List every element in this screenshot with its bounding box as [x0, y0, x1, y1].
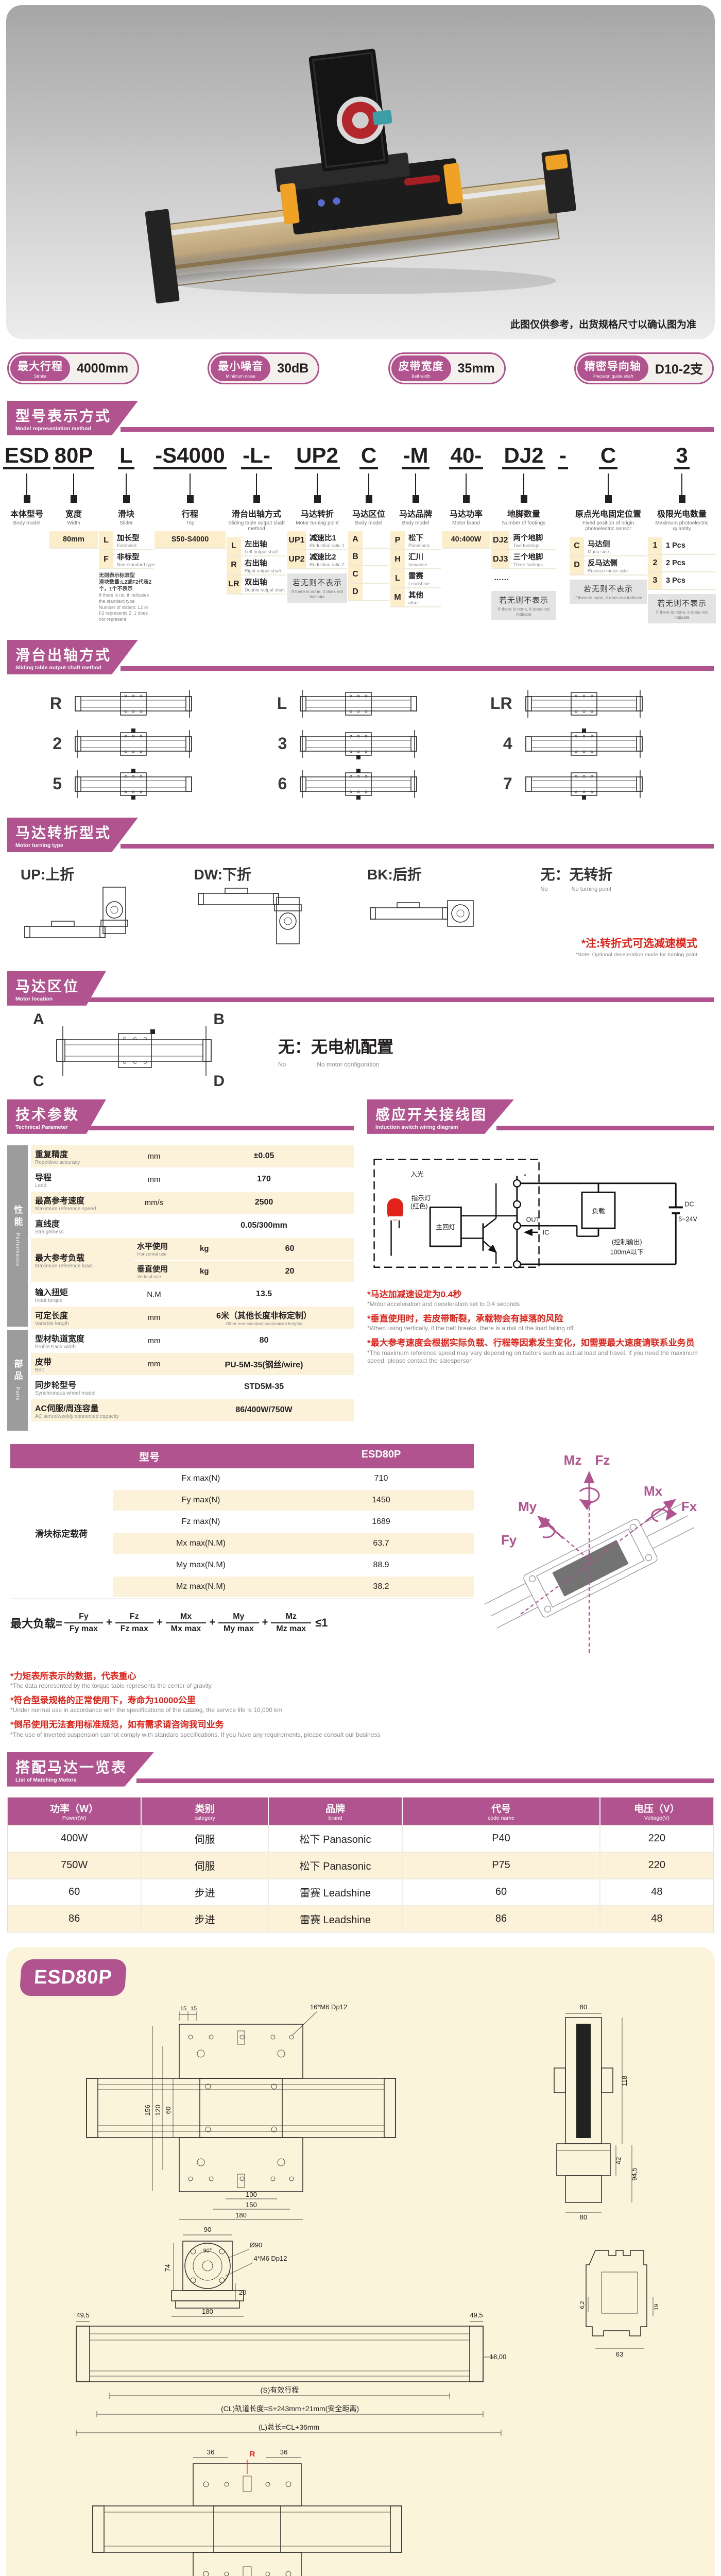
code-options: 40:400W: [442, 531, 490, 549]
param-value: PU-5M-35(钢丝/wire): [174, 1353, 354, 1375]
load-table-head: 型号 ESD80P: [10, 1444, 474, 1468]
subparam-en: Vertical use: [137, 1274, 197, 1279]
dim: 156: [144, 2105, 151, 2116]
option-en: Two footings: [513, 543, 554, 548]
param-name-en: Variable length: [35, 1321, 130, 1327]
cell-brand: 松下 Panasonic: [269, 1826, 403, 1852]
subparam-unit: kg: [200, 1238, 226, 1260]
param-value: 2500: [174, 1192, 354, 1214]
connector-line: [256, 473, 257, 495]
model-code-segment: -S4000: [153, 445, 226, 469]
dim: 180: [202, 2308, 213, 2315]
param-name-cn: 直线度: [35, 1217, 130, 1229]
tech-and-wiring: 技术参数Technical Parameter 性能 Performance 部…: [0, 1086, 721, 1431]
spec-badge-cn: 皮带宽度: [399, 358, 444, 374]
dim: 18,00: [489, 2353, 506, 2361]
turning-icon-dw: [194, 884, 354, 950]
code-field-label-en: Slider: [119, 520, 133, 527]
model-code-column: -S4000 行程 Trip S50-S4000: [154, 445, 226, 552]
option-cn: ……: [494, 574, 554, 582]
note-cn: *符合型录规格的正常使用下，寿命为10000公里: [10, 1695, 711, 1706]
load-rows: Fx max(N) 710 Fy max(N) 1450 Fz max(N) 1…: [113, 1468, 474, 1598]
shaft-variant: 7: [485, 768, 687, 800]
option-cn: 减速比2: [310, 551, 345, 562]
note-en: *The use of inverted suspension cannot c…: [10, 1731, 711, 1739]
no-motor-no: No: [278, 1061, 286, 1068]
section-subtitle: Induction switch wiring diagram: [375, 1124, 487, 1130]
load-row: Mx max(N.M) 63.7: [113, 1533, 474, 1555]
section-title: 型号表示方式: [15, 405, 111, 426]
code-field-label-en: Trip: [186, 520, 195, 527]
dim: 80: [579, 2003, 587, 2011]
col-power: 功率（W）: [8, 1801, 141, 1815]
dim: 42: [614, 2157, 622, 2164]
dim: 49,5: [470, 2311, 483, 2319]
section-subtitle: Motor location: [15, 996, 79, 1002]
param-name-cn: 型材轨道宽度: [35, 1332, 130, 1344]
option-cn: 40:400W: [451, 535, 482, 544]
option-key: B: [348, 549, 364, 565]
note-cn: *马达加减速设定为0.4秒: [367, 1289, 714, 1300]
turning-variant: UP:上折: [21, 863, 181, 950]
code-options: L 左出轴 Left output shaft R 右出轴 Right outp…: [227, 537, 286, 595]
fraction-numerator: Fz: [125, 1612, 144, 1622]
column-notes: 无则表示标准型滑块数量:L2或F2代表2个，1个不表示If there is n…: [99, 572, 153, 622]
connector-line: [681, 473, 682, 495]
code-option: 80mm: [49, 531, 98, 549]
dim: 36: [280, 2448, 287, 2456]
tech-rows: 重复精度 Repetitive accuracy mm ±0.05: [31, 1145, 354, 1431]
cell-category: 步进: [142, 1906, 269, 1932]
axis-mz: Mz: [564, 1452, 582, 1468]
option-key: C: [348, 566, 364, 583]
shaft-variant-label: 2: [34, 734, 62, 753]
motor-table-head: 功率（W）Power(W) 类别category 品牌brand 代号code …: [8, 1798, 713, 1825]
note-cn: *倒吊使用无法套用标准规范，如有需求请咨询我司业务: [10, 1719, 711, 1730]
tech-row: 重复精度 Repetitive accuracy mm ±0.05: [31, 1145, 354, 1168]
shaft-variant: 4: [485, 728, 687, 760]
code-field-label-cn: 本体型号: [10, 507, 43, 519]
connector-line: [126, 473, 127, 495]
option-cn: 左出轴: [245, 538, 284, 549]
spec-badge: 最大行程 Stroke 4000mm: [7, 352, 139, 384]
wiring-column: 感应开关接线图Induction switch wiring diagram 入…: [367, 1086, 714, 1431]
torque-notes: *力矩表所表示的数据，代表重心 *The data represented by…: [0, 1671, 721, 1739]
param-name-en: Belt: [35, 1367, 130, 1373]
dim: 150: [246, 2201, 257, 2209]
option-cn: 80mm: [63, 535, 84, 544]
shaft-variant-grid: R L: [0, 674, 721, 804]
max-load-formula: 最大负载= Fy Fy max + Fz: [10, 1612, 474, 1634]
motor-row: 86 步进 雷赛 Leadshine 86 48: [8, 1905, 713, 1932]
code-options: L 加长型 Extended F 非标型 Non-standard type: [99, 531, 153, 569]
slide-top-view-icon: [520, 728, 648, 760]
connector-node: [605, 495, 612, 503]
load-row: Fy max(N) 1450: [113, 1490, 474, 1512]
note-en: *The data represented by the torque tabl…: [10, 1682, 711, 1690]
connector-line: [26, 473, 27, 495]
option-note-box: 若无则不表示 If there is none, it does not ind…: [287, 573, 347, 603]
slide-top-view-icon: [69, 688, 198, 720]
shaft-variant-label: 7: [485, 774, 512, 793]
fraction-denominator: Mz max: [271, 1622, 311, 1634]
note: *倒吊使用无法套用标准规范，如有需求请咨询我司业务 *The use of in…: [10, 1719, 711, 1738]
turning-variant: BK:后折: [367, 863, 527, 950]
param-value: 13.5: [174, 1283, 354, 1306]
param-name-cn: 重复精度: [35, 1147, 130, 1160]
option-cn: 马达侧: [588, 538, 644, 549]
note: *垂直使用时，若皮带断裂，承载物会有掉落的风险 *When using vert…: [367, 1313, 714, 1332]
cell-code: 60: [403, 1879, 600, 1905]
location-a: A: [33, 1011, 44, 1028]
model-code-segment: ESD: [3, 445, 50, 469]
location-d: D: [213, 1073, 225, 1090]
connector-node: [463, 495, 470, 503]
connector-node: [187, 495, 194, 503]
code-field-label-cn: 滑块: [118, 507, 134, 519]
option-cn: 1 Pcs: [666, 541, 713, 550]
param-name-en: Maximum reference load: [35, 1263, 130, 1269]
connector-node: [123, 495, 130, 503]
param-value: 80: [174, 1330, 354, 1352]
subparam-value: 20: [226, 1261, 354, 1282]
note-cn: *最大参考速度会根据实际负载、行程等因素发生变化，如需要最大速度请联系业务员: [367, 1337, 714, 1348]
slide-top-view-icon: [520, 688, 648, 720]
dim: 15: [180, 2006, 186, 2012]
code-field-label-en: Maximum photoelectric quantity: [648, 520, 716, 532]
fraction-denominator: Mx max: [166, 1622, 207, 1634]
cell-power: 750W: [8, 1853, 142, 1878]
fraction-denominator: Fy max: [64, 1622, 103, 1634]
esd80p-panel: ESD80P 15 15 16*M6 Dp12 156 120: [6, 1947, 715, 2576]
load-value: 1450: [288, 1496, 474, 1505]
spec-badge-cn: 最小噪音: [218, 358, 263, 374]
turning-sub-no: No: [541, 886, 548, 892]
code-field-label-cn: 极限光电数量: [657, 507, 707, 519]
option-en: Left output shaft: [245, 549, 284, 554]
model-code-segment: -: [558, 445, 568, 469]
option-key: UP1: [287, 531, 307, 549]
param-name-cn: 可定长度: [35, 1309, 130, 1321]
param-subrow: 水平使用 Horizontal use kg 60: [134, 1238, 354, 1261]
option-cn: 松下: [408, 532, 438, 543]
model-code-segment: -M: [402, 445, 430, 469]
wiring-notes: *马达加减速设定为0.4秒 *Motor acceleration and de…: [367, 1289, 714, 1365]
cell-power: 400W: [8, 1826, 142, 1852]
model-code-segment: UP2: [295, 445, 340, 469]
column-note-line: 滑块数量:L2或F2代表2个，1个不表示: [99, 579, 153, 592]
spec-badge-value: D10-2支: [650, 359, 712, 378]
col-code: 代号: [403, 1801, 599, 1815]
tech-column: 技术参数Technical Parameter 性能 Performance 部…: [7, 1086, 354, 1431]
tech-row: AC伺服/周连容量 AC servo/weekly connected capa…: [31, 1399, 354, 1422]
option-key: 3: [648, 572, 663, 589]
code-field-label-en: Motor turning point: [296, 520, 338, 527]
section-title: 马达区位: [15, 975, 79, 996]
col-category: 类别: [142, 1801, 268, 1815]
dim: Ø90: [249, 2241, 262, 2249]
code-field-label-cn: 行程: [182, 507, 198, 519]
option-key: D: [570, 556, 585, 574]
code-option: LR 双出轴 Double output shaft: [227, 575, 286, 595]
shaft-variant-label: 5: [34, 774, 62, 793]
formula-fraction: + My My max: [206, 1612, 259, 1634]
model-code-column: 3 极限光电数量 Maximum photoelectric quantity …: [648, 445, 716, 626]
fraction-numerator: Mz: [281, 1612, 302, 1622]
code-options: C 马达侧 Mada side D 反马达侧 Reverse motor sid…: [570, 537, 647, 575]
note-en: *The maximum reference speed may vary de…: [367, 1349, 714, 1365]
param-value: 170: [174, 1168, 354, 1191]
motor-location-diagram: A B C D: [36, 1016, 242, 1086]
note-en: *When using vertically, if the belt brea…: [367, 1325, 714, 1332]
turning-variant-label: DW:下折: [194, 863, 354, 884]
section-rule: [496, 1126, 714, 1130]
cell-code: P40: [403, 1826, 600, 1852]
code-field-label-en: Body model: [355, 520, 383, 527]
option-key: L: [390, 569, 406, 587]
option-key: UP2: [287, 550, 307, 568]
model-code-segment: C: [599, 445, 617, 469]
code-option: DJ3 三个地脚 Three footings: [491, 550, 556, 569]
code-option: H 汇川 Inovance: [390, 550, 441, 569]
option-key: D: [348, 584, 364, 600]
param-name-en: Synchronous wheel model: [35, 1391, 130, 1396]
esd80p-end-view: 80 118 42 94,5 80: [517, 1996, 645, 2223]
cell-code: 86: [403, 1906, 600, 1932]
load-param: Mx max(N.M): [113, 1539, 288, 1548]
dim: 36: [207, 2448, 214, 2456]
fraction-denominator: Fz max: [115, 1622, 153, 1634]
shaft-variant: LR: [485, 688, 687, 720]
load-param: Fz max(N): [113, 1517, 288, 1527]
code-field-label-cn: 马达区位: [352, 507, 385, 519]
tech-row: 直线度 Straightness 0.05/300mm: [31, 1215, 354, 1238]
code-field-label-en: Width: [67, 520, 80, 527]
code-field-label-cn: 地脚数量: [507, 507, 540, 519]
option-cn: 非标型: [117, 551, 155, 562]
turning-variant-label: BK:后折: [367, 863, 527, 884]
dim: 100: [246, 2191, 257, 2198]
param-unit: [134, 1215, 174, 1237]
turning-sub-en: No turning point: [572, 886, 612, 892]
connector-node: [366, 495, 372, 503]
spec-badge-label: 最大行程 Stroke: [10, 355, 70, 381]
code-field-label-cn: 原点光电固定位置: [575, 507, 641, 519]
param-name-cn: 同步轮型号: [35, 1378, 130, 1391]
model-code-segment: 40-: [449, 445, 484, 469]
connector-node: [314, 495, 321, 503]
option-en: Leadshine: [408, 581, 438, 586]
connector-line: [368, 473, 369, 495]
column-note-line: Number of sliders: L2 or F2 represents 2…: [99, 605, 153, 623]
dim: 90°: [203, 2248, 212, 2254]
axis-fy: Fy: [501, 1532, 517, 1548]
option-key: L: [99, 531, 114, 549]
section-subtitle: Motor turning type: [15, 842, 111, 849]
option-en: Three footings: [513, 562, 554, 567]
model-code-column: UP2 马达转折 Motor turning point UP1 减速比1 Re…: [287, 445, 347, 606]
code-field-label-en: Number of footings: [502, 520, 546, 527]
code-option: C 马达侧 Mada side: [570, 537, 647, 556]
subparam-unit: kg: [200, 1261, 226, 1282]
shaft-variant: 5: [34, 768, 236, 800]
model-code-column: 40- 马达功率 Motor brand 40:400W: [442, 445, 490, 552]
param-value-sub: Other non-standard customized lengths: [226, 1321, 302, 1326]
option-en: Inovance: [408, 562, 438, 567]
code-field-label-cn: 马达转折: [301, 507, 334, 519]
dim-stroke: (S)有效行程: [260, 2386, 299, 2394]
model-code-column: DJ2 地脚数量 Number of footings DJ2 两个地脚 Two…: [491, 445, 556, 623]
motor-location: A B C D 无：无电机配置 No No motor configuratio…: [0, 1006, 721, 1086]
section-title: 滑台出轴方式: [15, 644, 111, 665]
formula-suffix: ≤1: [315, 1616, 328, 1630]
spec-badge-value: 30dB: [272, 361, 318, 376]
section-rule: [121, 666, 714, 671]
load-group-label: 滑块标定载荷: [10, 1468, 113, 1598]
param-unit: mm: [134, 1168, 174, 1191]
slide-top-view-icon: [69, 768, 198, 800]
option-en: Panasonic: [408, 543, 438, 548]
code-option: A: [348, 531, 389, 549]
code-option: 2 2 Pcs: [648, 555, 716, 572]
dim: 180: [235, 2211, 247, 2219]
model-code-column: -L- 滑台出轴方式 Sliding table output shaft me…: [227, 445, 286, 598]
code-option: R 右出轴 Right output shaft: [227, 556, 286, 575]
product-hero: 此图仅供参考，出货规格尺寸以确认图为准: [6, 5, 715, 339]
tech-table: 性能 Performance 部品 Parts 重复精度 Repetitive …: [7, 1145, 354, 1431]
spec-badge-en: Minimum noise: [218, 374, 263, 379]
option-key: DJ2: [491, 531, 510, 549]
option-key: 1: [648, 537, 663, 554]
note-en: *Under normal use in accordance with the…: [10, 1706, 711, 1714]
load-value: 1689: [288, 1517, 474, 1527]
option-key: A: [348, 531, 364, 548]
axis-mx: Mx: [644, 1483, 663, 1499]
code-option: M 其他 other: [390, 588, 441, 607]
param-name-en: Lead: [35, 1183, 130, 1189]
code-option: F 非标型 Non-standard type: [99, 550, 153, 569]
cell-category: 步进: [142, 1879, 269, 1905]
cell-power: 86: [8, 1906, 142, 1932]
spec-badge-cn: 最大行程: [18, 358, 63, 374]
col-brand: 品牌: [269, 1801, 402, 1815]
spec-badge-en: Stroke: [18, 374, 63, 379]
spec-badge-label: 皮带宽度 Belt width: [391, 355, 451, 381]
spec-badge: 精密导向轴 Precision guide shaft D10-2支: [574, 352, 714, 384]
load-param: Mz max(N.M): [113, 1582, 288, 1591]
shaft-variant-label: R: [34, 694, 62, 713]
label-main-circuit: 主回灯: [436, 1224, 455, 1231]
option-key: DJ3: [491, 550, 510, 568]
label-out: OUT: [526, 1216, 540, 1223]
option-en: Right output shaft: [245, 568, 284, 573]
code-field-label-cn: 滑台出轴方式: [232, 507, 281, 519]
esd80p-profile-section: 6,2 19 63: [565, 2226, 674, 2365]
param-value: STD5M-35: [174, 1376, 354, 1398]
motor-row: 750W 伺服 松下 Panasonic P75 220: [8, 1852, 713, 1878]
turning-icon-up: [21, 884, 181, 950]
label-ic: IC: [543, 1229, 550, 1236]
shaft-variant: R: [34, 688, 236, 720]
cell-power: 60: [8, 1879, 142, 1905]
option-key: F: [99, 550, 114, 568]
option-cn: 加长型: [117, 532, 151, 543]
param-value: 86/400W/750W: [174, 1399, 354, 1421]
connector-node: [521, 495, 527, 503]
formula-fraction: + Mz Mz max: [259, 1612, 311, 1634]
code-option: L 加长型 Extended: [99, 531, 153, 550]
column-note-line: 无则表示标准型: [99, 572, 153, 579]
load-param: Fy max(N): [113, 1496, 288, 1505]
section-header-shaft: 滑台出轴方式Sliding table output shaft method: [7, 640, 714, 674]
code-field-label-en: Fixed position of origin photoelectric s…: [570, 520, 647, 532]
fraction-numerator: Mx: [175, 1612, 197, 1622]
tech-row: 导程 Lead mm 170: [31, 1168, 354, 1192]
dim: 80: [579, 2213, 587, 2221]
tech-row: 皮带 Belt mm PU-5M-35(钢丝/wire): [31, 1353, 354, 1376]
label-ctrl-output: (控制输出): [612, 1238, 642, 1246]
param-unit: mm: [134, 1330, 174, 1352]
param-name-cn: AC伺服/周连容量: [35, 1401, 130, 1414]
param-unit: [134, 1376, 174, 1398]
option-cn: 三个地脚: [513, 551, 554, 562]
note: *力矩表所表示的数据，代表重心 *The data represented by…: [10, 1671, 711, 1690]
shaft-variant-label: L: [259, 694, 287, 713]
turning-variant-label: UP:上折: [21, 863, 181, 884]
dim-total: (L)总长=CL+36mm: [258, 2423, 319, 2431]
section-subtitle: Sliding table output shaft method: [15, 665, 111, 671]
note-cn: *力矩表所表示的数据，代表重心: [10, 1671, 711, 1682]
shaft-variant: 3: [259, 728, 461, 760]
model-code-segment: -L-: [241, 445, 272, 469]
section-title: 感应开关接线图: [375, 1104, 487, 1124]
spec-badge-label: 精密导向轴 Precision guide shaft: [577, 355, 648, 381]
model-code-column: -M 马达品牌 Body model P 松下 Panasonic: [390, 445, 441, 611]
section-header-location: 马达区位Motor location: [7, 971, 714, 1006]
dim: 94,5: [630, 2167, 638, 2180]
connector-line: [317, 473, 318, 495]
group-performance: 性能 Performance: [7, 1145, 28, 1327]
load-value: 88.9: [288, 1561, 474, 1570]
code-field-label-cn: 宽度: [65, 507, 82, 519]
code-option: ……: [491, 569, 556, 587]
turning-variant: 无：无转折 No No turning point: [541, 863, 701, 892]
spec-badge-label: 最小噪音 Minimum noise: [211, 355, 270, 381]
esd80p-front-view: 90 90° Ø90 4*M6 Dp12 74 20 180 49,5 49,5…: [48, 2226, 511, 2442]
spec-badge-en: Belt width: [399, 374, 444, 379]
code-field-label-en: Motor brand: [452, 520, 480, 527]
location-b: B: [213, 1011, 225, 1028]
param-name-en: Repetitive accuracy: [35, 1160, 130, 1165]
section-title: 搭配马达一览表: [15, 1756, 127, 1777]
code-option: D 反马达侧 Reverse motor side: [570, 556, 647, 575]
option-cn: 反马达侧: [588, 557, 644, 568]
code-option: UP1 减速比1 Reduction ratio 1: [287, 531, 347, 550]
param-name-en: Maximum reference speed: [35, 1206, 130, 1212]
model-code-segment: 3: [674, 445, 689, 469]
option-key: 2: [648, 555, 663, 571]
esd80p-bottom-view: 36 36 R L: [82, 2444, 412, 2576]
connector-line: [190, 473, 191, 495]
dim-holes: 16*M6 Dp12: [310, 2003, 347, 2011]
shaft-variant: L: [259, 688, 461, 720]
spec-badge-en: Precision guide shaft: [585, 374, 641, 379]
turning-variant-label: 无：无转折: [541, 863, 701, 884]
axis-my: My: [518, 1499, 537, 1514]
param-name-cn: 皮带: [35, 1355, 130, 1367]
esd80p-badge: ESD80P: [20, 1959, 127, 1996]
code-option: 1 1 Pcs: [648, 537, 716, 555]
